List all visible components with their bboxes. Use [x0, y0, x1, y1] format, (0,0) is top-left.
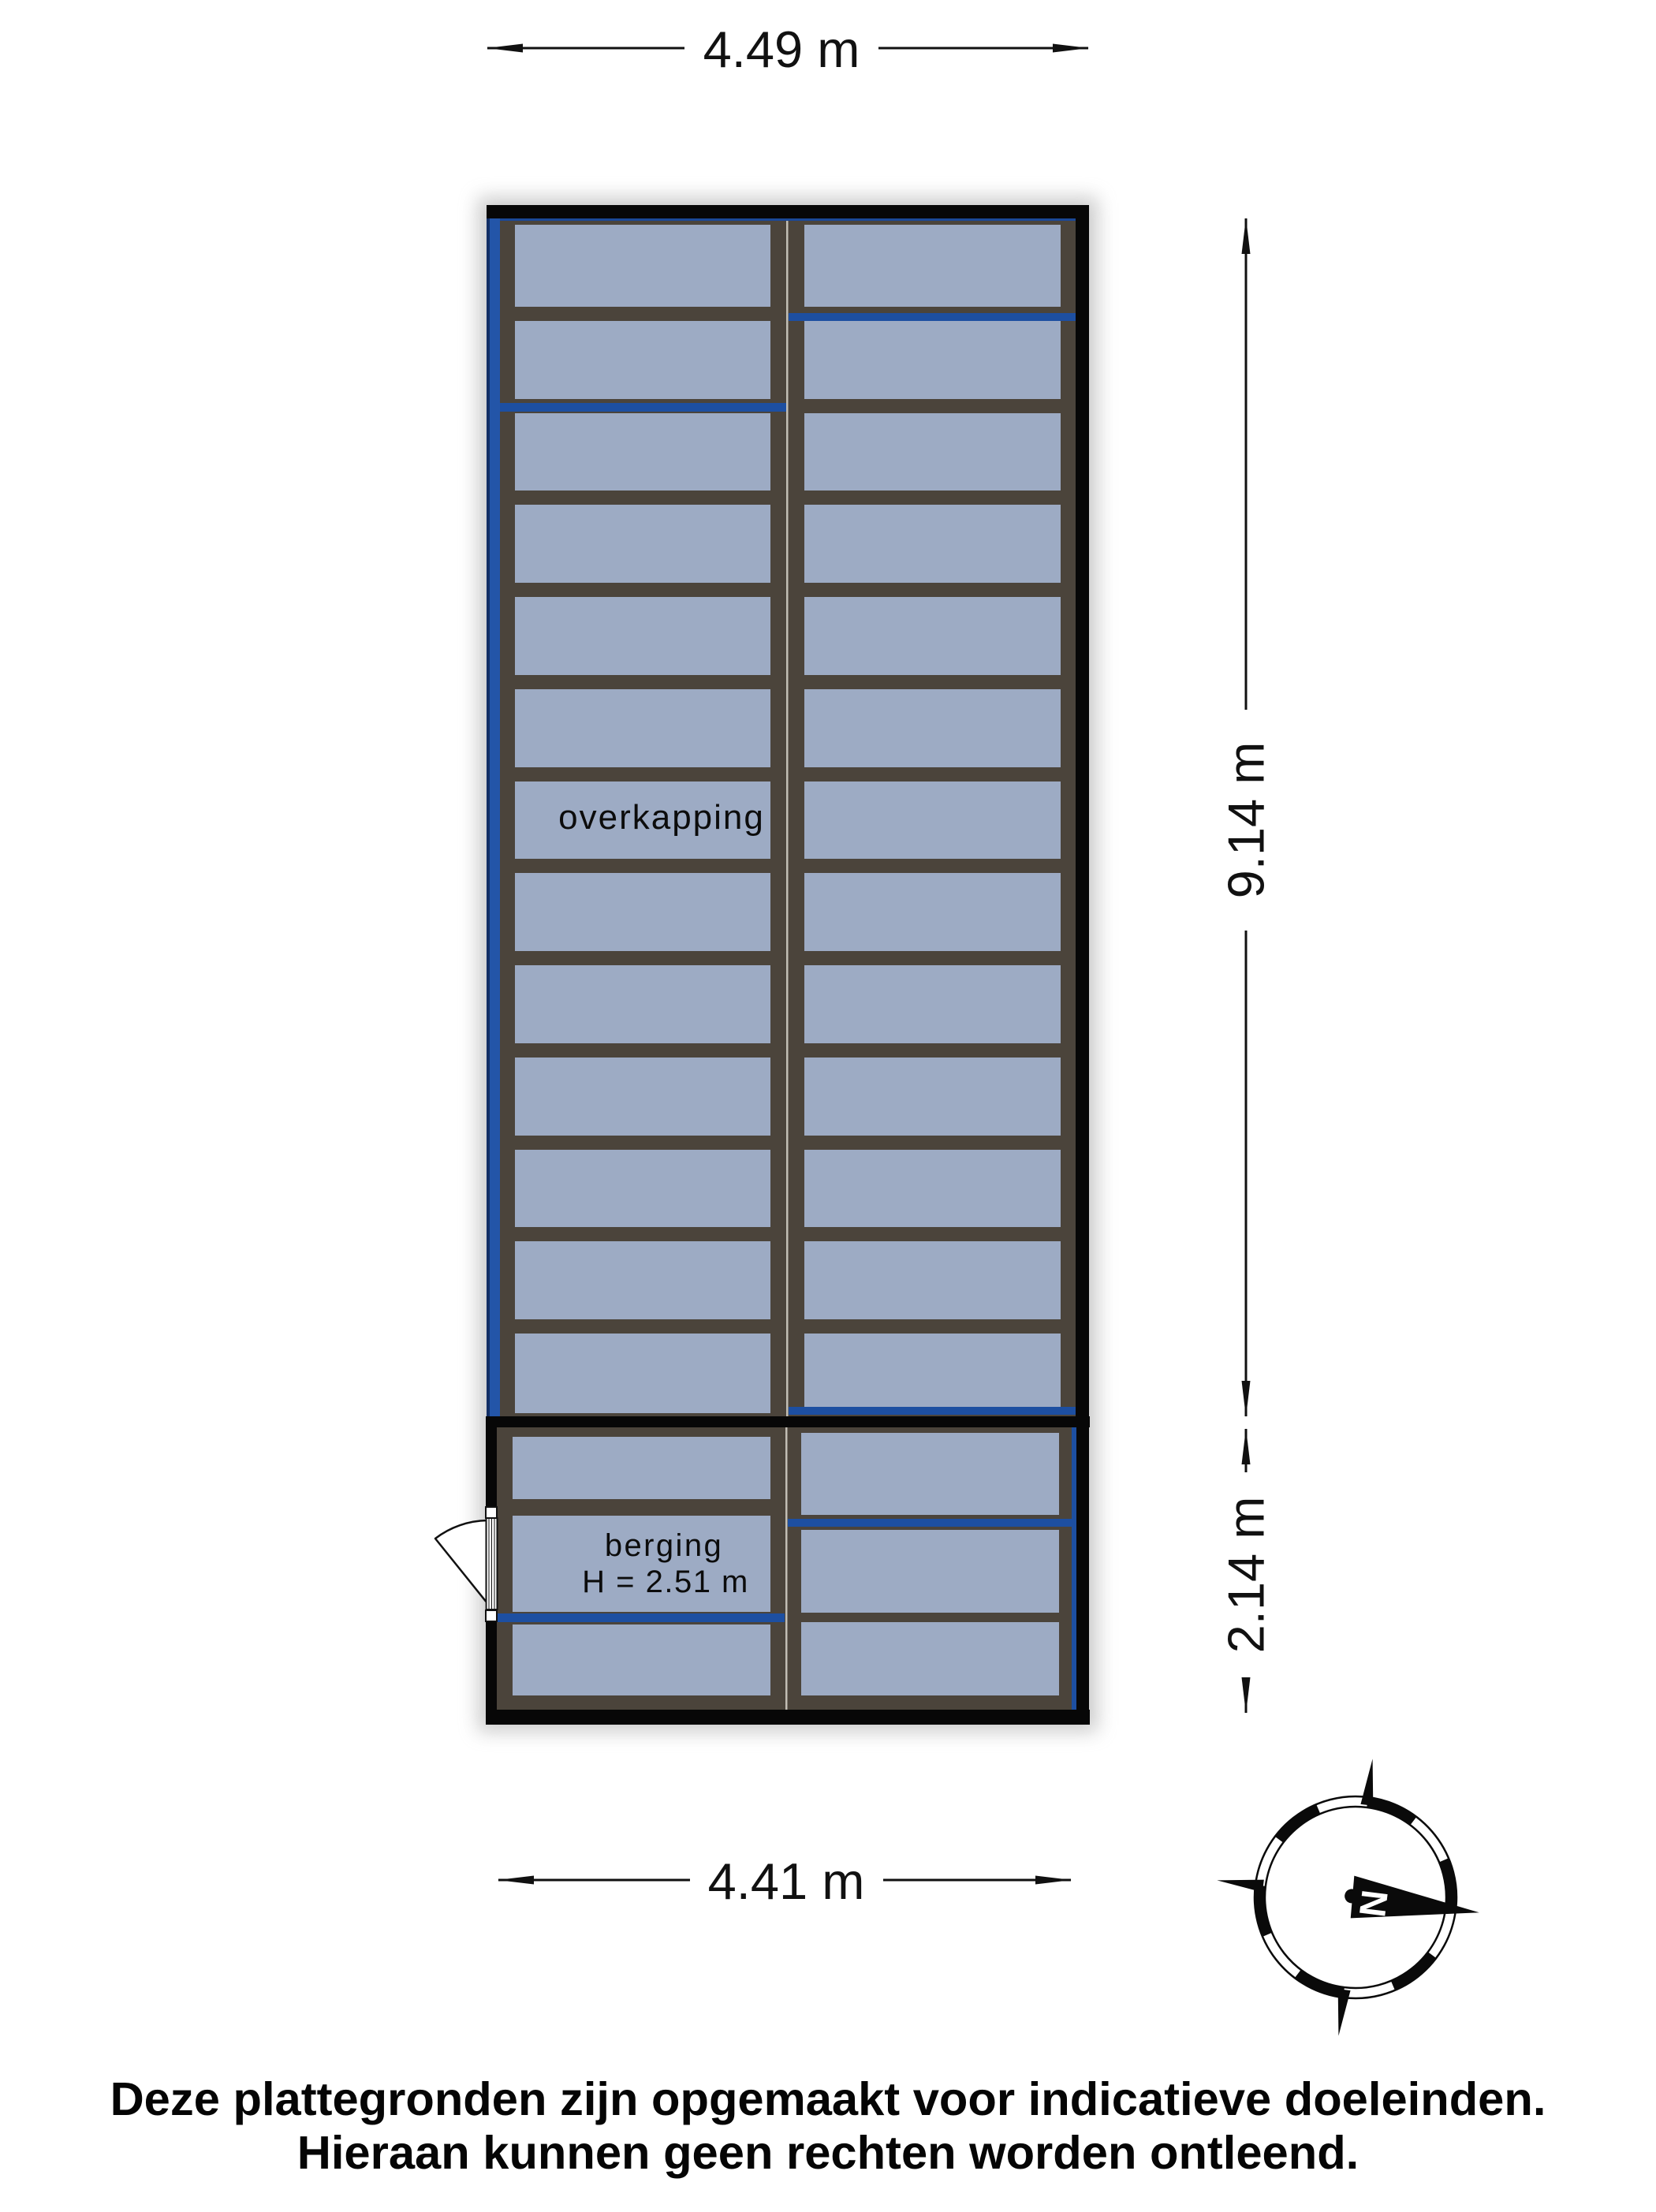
svg-text:N: N [1352, 1888, 1397, 1919]
svg-text:2.14 m: 2.14 m [1218, 1497, 1275, 1654]
svg-text:Hieraan kunnen geen rechten wo: Hieraan kunnen geen rechten worden ontle… [297, 2126, 1359, 2179]
svg-text:4.49 m: 4.49 m [703, 21, 860, 78]
svg-text:Deze plattegronden zijn opgema: Deze plattegronden zijn opgemaakt voor i… [110, 2072, 1546, 2125]
svg-text:9.14 m: 9.14 m [1218, 742, 1275, 899]
svg-text:berging: berging [605, 1528, 723, 1563]
svg-text:4.41 m: 4.41 m [708, 1852, 865, 1910]
svg-text:overkapping: overkapping [558, 798, 765, 837]
svg-text:H = 2.51 m: H = 2.51 m [582, 1565, 749, 1599]
